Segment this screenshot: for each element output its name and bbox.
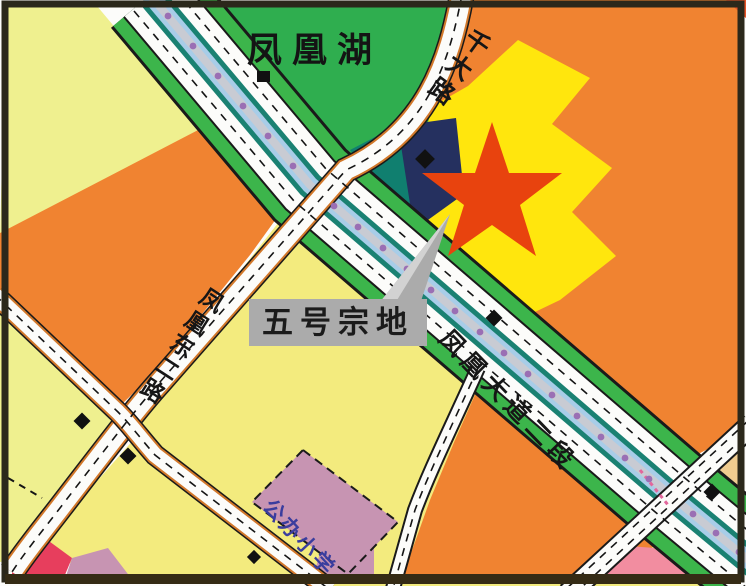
map-canvas — [0, 0, 746, 586]
plot-callout-box: 五号宗地 — [249, 299, 427, 346]
poi-dot-icon — [257, 71, 270, 82]
lake-label: 凤凰湖 — [247, 33, 382, 68]
zoning-map: 凤凰湖 千大路 凤凰东二路 凤凰大道二段 公办小学 五号宗地 — [0, 0, 746, 586]
